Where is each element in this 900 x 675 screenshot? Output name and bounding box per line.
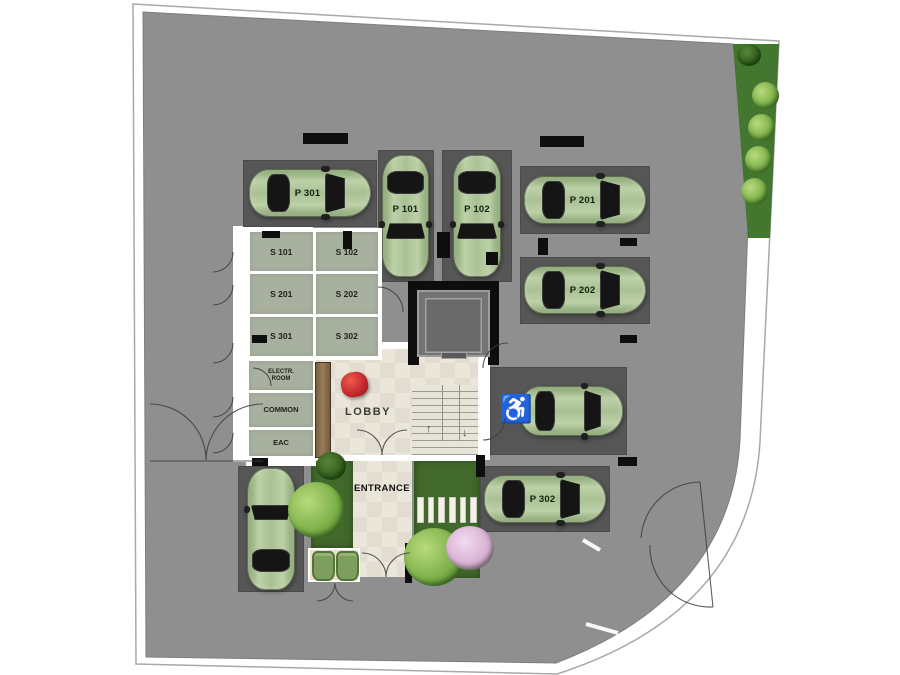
column: [252, 458, 268, 466]
entrance-label: ENTRANCE: [347, 483, 417, 494]
parking-label-p302: P 302: [525, 481, 559, 518]
parking-label-p101: P 101: [382, 196, 429, 222]
elevator-shaft: [408, 281, 499, 357]
car-p302: P 302: [484, 475, 606, 523]
tree-icon: [741, 178, 768, 205]
stairs-up-arrow-icon: ↑: [426, 423, 432, 435]
parking-label-visitor: [247, 520, 295, 546]
column: [252, 335, 267, 343]
parking-bay-p102: P 102: [442, 150, 512, 282]
electrical-room-label-line1: ELECTR.: [268, 369, 294, 376]
tree-icon: [316, 452, 346, 480]
elevator-door: [441, 352, 467, 359]
parking-label-p201: P 201: [565, 182, 599, 219]
column: [486, 252, 498, 265]
column: [620, 335, 637, 343]
room-s101: S 101: [250, 232, 313, 271]
elevator-cab: [425, 298, 482, 353]
parking-label-accessible: [555, 392, 584, 430]
column: [618, 457, 637, 466]
room-s302: S 302: [316, 317, 379, 356]
parking-label-p301: P 301: [290, 175, 324, 212]
garden-chair-1: [312, 551, 335, 581]
parking-label-p202: P 202: [565, 272, 599, 309]
room-common: COMMON: [249, 393, 313, 427]
car-p202: P 202: [524, 266, 646, 314]
car-p101: P 101: [382, 155, 429, 277]
service-rooms-block: ELECTR. ROOM COMMON EAC: [246, 358, 316, 466]
electrical-room-label-line2: ROOM: [272, 376, 291, 383]
column: [620, 238, 637, 246]
wall-stub: [303, 133, 348, 144]
parking-bay-accessible: ♿: [490, 367, 627, 455]
tree-icon: [745, 146, 772, 173]
garden-chair-2: [336, 551, 359, 581]
column: [262, 231, 280, 238]
parking-bay-p301: P 301: [243, 160, 377, 227]
car-p201: P 201: [524, 176, 646, 224]
lobby-label: LOBBY: [338, 406, 398, 418]
parking-bay-p101: P 101: [378, 150, 434, 282]
room-eac: EAC: [249, 430, 313, 456]
staircase: ↑ ↓: [412, 385, 478, 455]
parking-bay-p201: P 201: [520, 166, 650, 234]
car-accessible: [520, 386, 623, 436]
parking-bay-p302: P 302: [480, 466, 610, 532]
column: [437, 232, 450, 258]
stepping-stones: [417, 497, 477, 523]
parking-bay-p202: P 202: [520, 257, 650, 324]
room-s202: S 202: [316, 274, 379, 313]
room-electrical: ELECTR. ROOM: [249, 361, 313, 390]
column: [476, 455, 485, 477]
entrance-walkway: [352, 457, 412, 577]
wheelchair-icon: ♿: [499, 396, 533, 423]
tree-icon: [288, 482, 344, 538]
parking-bay-visitor: [238, 466, 304, 592]
bench-platform: [308, 548, 360, 582]
wall-stub: [540, 136, 584, 147]
stair-steps: [412, 385, 478, 455]
car-visitor: [247, 468, 295, 590]
column: [343, 231, 352, 249]
parking-label-p102: P 102: [453, 196, 501, 222]
tree-icon: [737, 44, 761, 66]
room-s201: S 201: [250, 274, 313, 313]
column: [538, 238, 548, 255]
stairs-down-arrow-icon: ↓: [462, 427, 468, 439]
tree-icon: [748, 114, 775, 141]
tree-icon: [752, 82, 779, 109]
car-p301: P 301: [249, 169, 371, 217]
reception-desk: [315, 362, 331, 458]
floor-plan: S 101 S 102 S 201 S 202 S 301 S 302 ELEC…: [0, 0, 900, 675]
cherry-tree-icon: [446, 526, 494, 570]
